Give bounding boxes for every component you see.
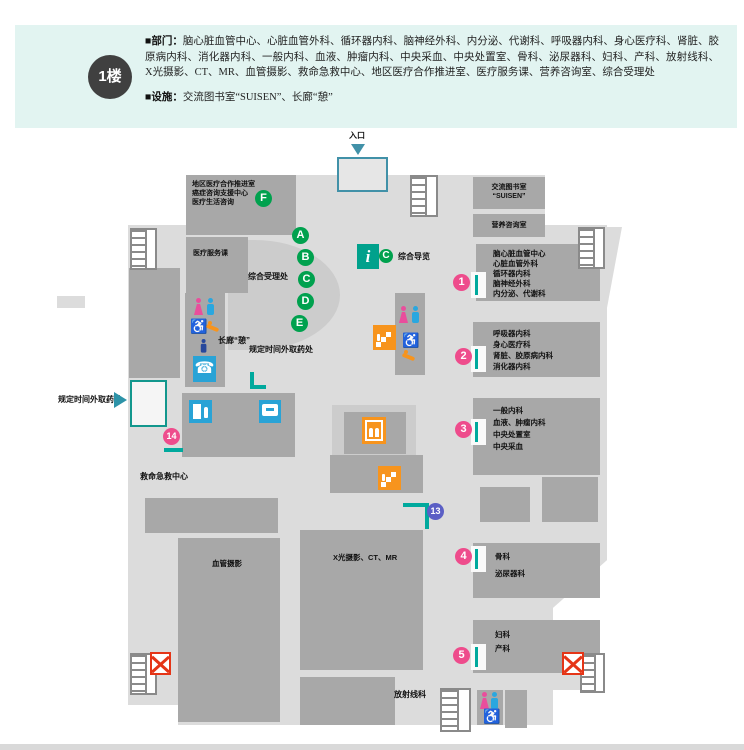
page-bottom-bar [0, 744, 744, 750]
floor-map: 综合受理处 地区医疗合作推进室 癌症咨询支援中心 医疗生活咨询 F 医疗服务课 … [65, 130, 645, 750]
room-entry-tab [471, 419, 486, 445]
room-entry-tab [471, 644, 486, 670]
header-text: ■部门：脑心脏血管中心、心脏血管外科、循环器内科、脑神经外科、内分泌、代谢科、呼… [145, 34, 719, 105]
service-block [182, 393, 295, 457]
toilet-female-icon [480, 692, 489, 709]
room-radiology [300, 677, 395, 725]
marker-e: E [291, 315, 308, 332]
marker-b: B [297, 249, 314, 266]
marker-1: 1 [453, 274, 470, 291]
corner-mark-13 [403, 503, 429, 529]
header-panel: 1楼 ■部门：脑心脏血管中心、心脏血管外科、循环器内科、脑神经外科、内分泌、代谢… [15, 25, 737, 128]
room-label: 呼吸器内科 身心医疗科 肾脏、胶原病内科 消化器内科 [493, 328, 553, 372]
marker-f: F [255, 190, 272, 207]
elevator-crossed-icon [562, 652, 584, 675]
room-label: 营养咨询室 [473, 221, 545, 230]
marker-c-info: C [379, 249, 393, 263]
room-entry-bar [475, 275, 478, 295]
room-entry-tab [471, 346, 486, 372]
wheelchair-icon: ♿ [402, 333, 419, 347]
nursing-person-icon [200, 339, 207, 353]
facilities-line: ■设施：交流图书室“SUISEN”、长廊“憩” [145, 90, 719, 106]
room-block [129, 268, 180, 378]
stair-hall [330, 455, 423, 493]
escalator-icon [373, 325, 396, 350]
pickup-arrow-icon [114, 392, 127, 408]
phone-icon: ☎ [193, 356, 216, 382]
room-label: 地区医疗合作推进室 癌症咨询支援中心 医疗生活咨询 [192, 180, 255, 207]
room-label: 医疗服务课 [193, 249, 228, 258]
corridor-label: 长廊“憩” [218, 336, 250, 346]
room-entry-tab [471, 272, 486, 298]
stairs-icon [130, 228, 157, 270]
toilet-male-icon [411, 306, 420, 323]
wheelchair-icon: ♿ [190, 319, 207, 333]
marker-4: 4 [455, 548, 472, 565]
room-ortho-urology: 骨科 泌尿器科 [473, 543, 600, 598]
wheelchair-icon: ♿ [483, 709, 500, 723]
departments-line: ■部门：脑心脏血管中心、心脏血管外科、循环器内科、脑神经外科、内分泌、代谢科、呼… [145, 34, 719, 81]
room-entry-bar [475, 422, 478, 442]
room-label: X光摄影、CT、MR [333, 552, 397, 563]
room-entry-tab [471, 546, 486, 572]
entrance-label: 入口 [349, 131, 365, 141]
room-regional-cooperation: 地区医疗合作推进室 癌症咨询支援中心 医疗生活咨询 [186, 175, 296, 235]
room-label: 血管摄影 [212, 558, 242, 569]
vending-machine-icon [189, 400, 212, 423]
ostomate-icon [402, 350, 416, 364]
marker-c: C [298, 271, 315, 288]
pickup-corner-mark [250, 372, 266, 389]
room-vascular-imaging: 血管摄影 [178, 538, 280, 722]
stairs-icon [440, 688, 471, 732]
marker-d: D [297, 293, 314, 310]
departments-list: 脑心脏血管中心、心脏血管外科、循环器内科、脑神经外科、内分泌、代谢科、呼吸器内科… [145, 36, 719, 78]
marker-3: 3 [455, 421, 472, 438]
room-xray-ct-mr: X光摄影、CT、MR [300, 530, 423, 670]
elevator-person-icon [369, 428, 373, 437]
room-suisen-library: 交流图书室 “SUISEN” [473, 177, 545, 209]
room-block [542, 477, 598, 522]
room-entry-bar [475, 549, 478, 569]
pickup-window-box [130, 380, 167, 427]
marker-14-bar [164, 448, 183, 452]
departments-label: ■部门： [145, 36, 183, 47]
elevator-crossed-icon [150, 652, 171, 675]
facilities-label: ■设施： [145, 92, 183, 103]
toilet-female-icon [194, 298, 203, 315]
info-label: 综合导览 [398, 252, 430, 262]
radiology-label: 放射线科 [394, 690, 426, 700]
stairs-up-icon [378, 466, 401, 490]
room-label: 骨科 泌尿器科 [495, 548, 525, 582]
room-label: 妇科 产科 [495, 628, 510, 656]
amenity-strip-right: ♿ [395, 293, 425, 375]
toilet-female-icon [399, 306, 408, 323]
floor-badge: 1楼 [88, 55, 132, 99]
room-block [505, 690, 527, 728]
room-label: 交流图书室 “SUISEN” [473, 183, 545, 201]
elevator-icon [362, 417, 386, 444]
stairs-icon [578, 227, 605, 269]
marker-a: A [292, 227, 309, 244]
facilities-list: 交流图书室“SUISEN”、长廊“憩” [183, 92, 333, 103]
atm-icon [259, 400, 281, 423]
room-label: 一般内科 血液、肿瘤内科 中央处置室 中央采血 [493, 405, 546, 453]
pickup-left-label: 规定时间外取药处 [58, 395, 122, 405]
toilet-male-icon [206, 298, 215, 315]
elevator-person-icon [375, 428, 379, 437]
marker-14: 14 [163, 428, 180, 445]
emergency-label: 救命急救中心 [140, 472, 188, 482]
room-label: 脑心脏血管中心 心脏血管外科 循环器内科 脑神经外科 内分泌、代谢科 [493, 249, 546, 299]
stairs-icon [410, 175, 438, 217]
room-nutrition: 营养咨询室 [473, 214, 545, 237]
room-entry-bar [475, 349, 478, 369]
toilet-block-bottom: ♿ [477, 690, 503, 725]
room-entry-bar [475, 647, 478, 667]
entrance-arrow-icon [351, 144, 365, 155]
floor-base [57, 296, 85, 308]
marker-2: 2 [455, 348, 472, 365]
room-block [480, 487, 530, 522]
entrance-box [337, 157, 388, 192]
reception-label: 综合受理处 [248, 272, 288, 282]
room-medical-service: 医疗服务课 [186, 237, 248, 293]
marker-13: 13 [427, 503, 444, 520]
room-respiratory-digestive: 呼吸器内科 身心医疗科 肾脏、胶原病内科 消化器内科 [473, 322, 600, 377]
elevator-car [365, 420, 383, 441]
ostomate-icon [206, 321, 220, 335]
information-icon: i [357, 244, 379, 269]
marker-5: 5 [453, 647, 470, 664]
room-general-internal: 一般内科 血液、肿瘤内科 中央处置室 中央采血 [473, 398, 600, 475]
toilet-male-icon [490, 692, 499, 709]
pickup-label: 规定时间外取药处 [249, 345, 313, 355]
room-block [145, 498, 278, 533]
